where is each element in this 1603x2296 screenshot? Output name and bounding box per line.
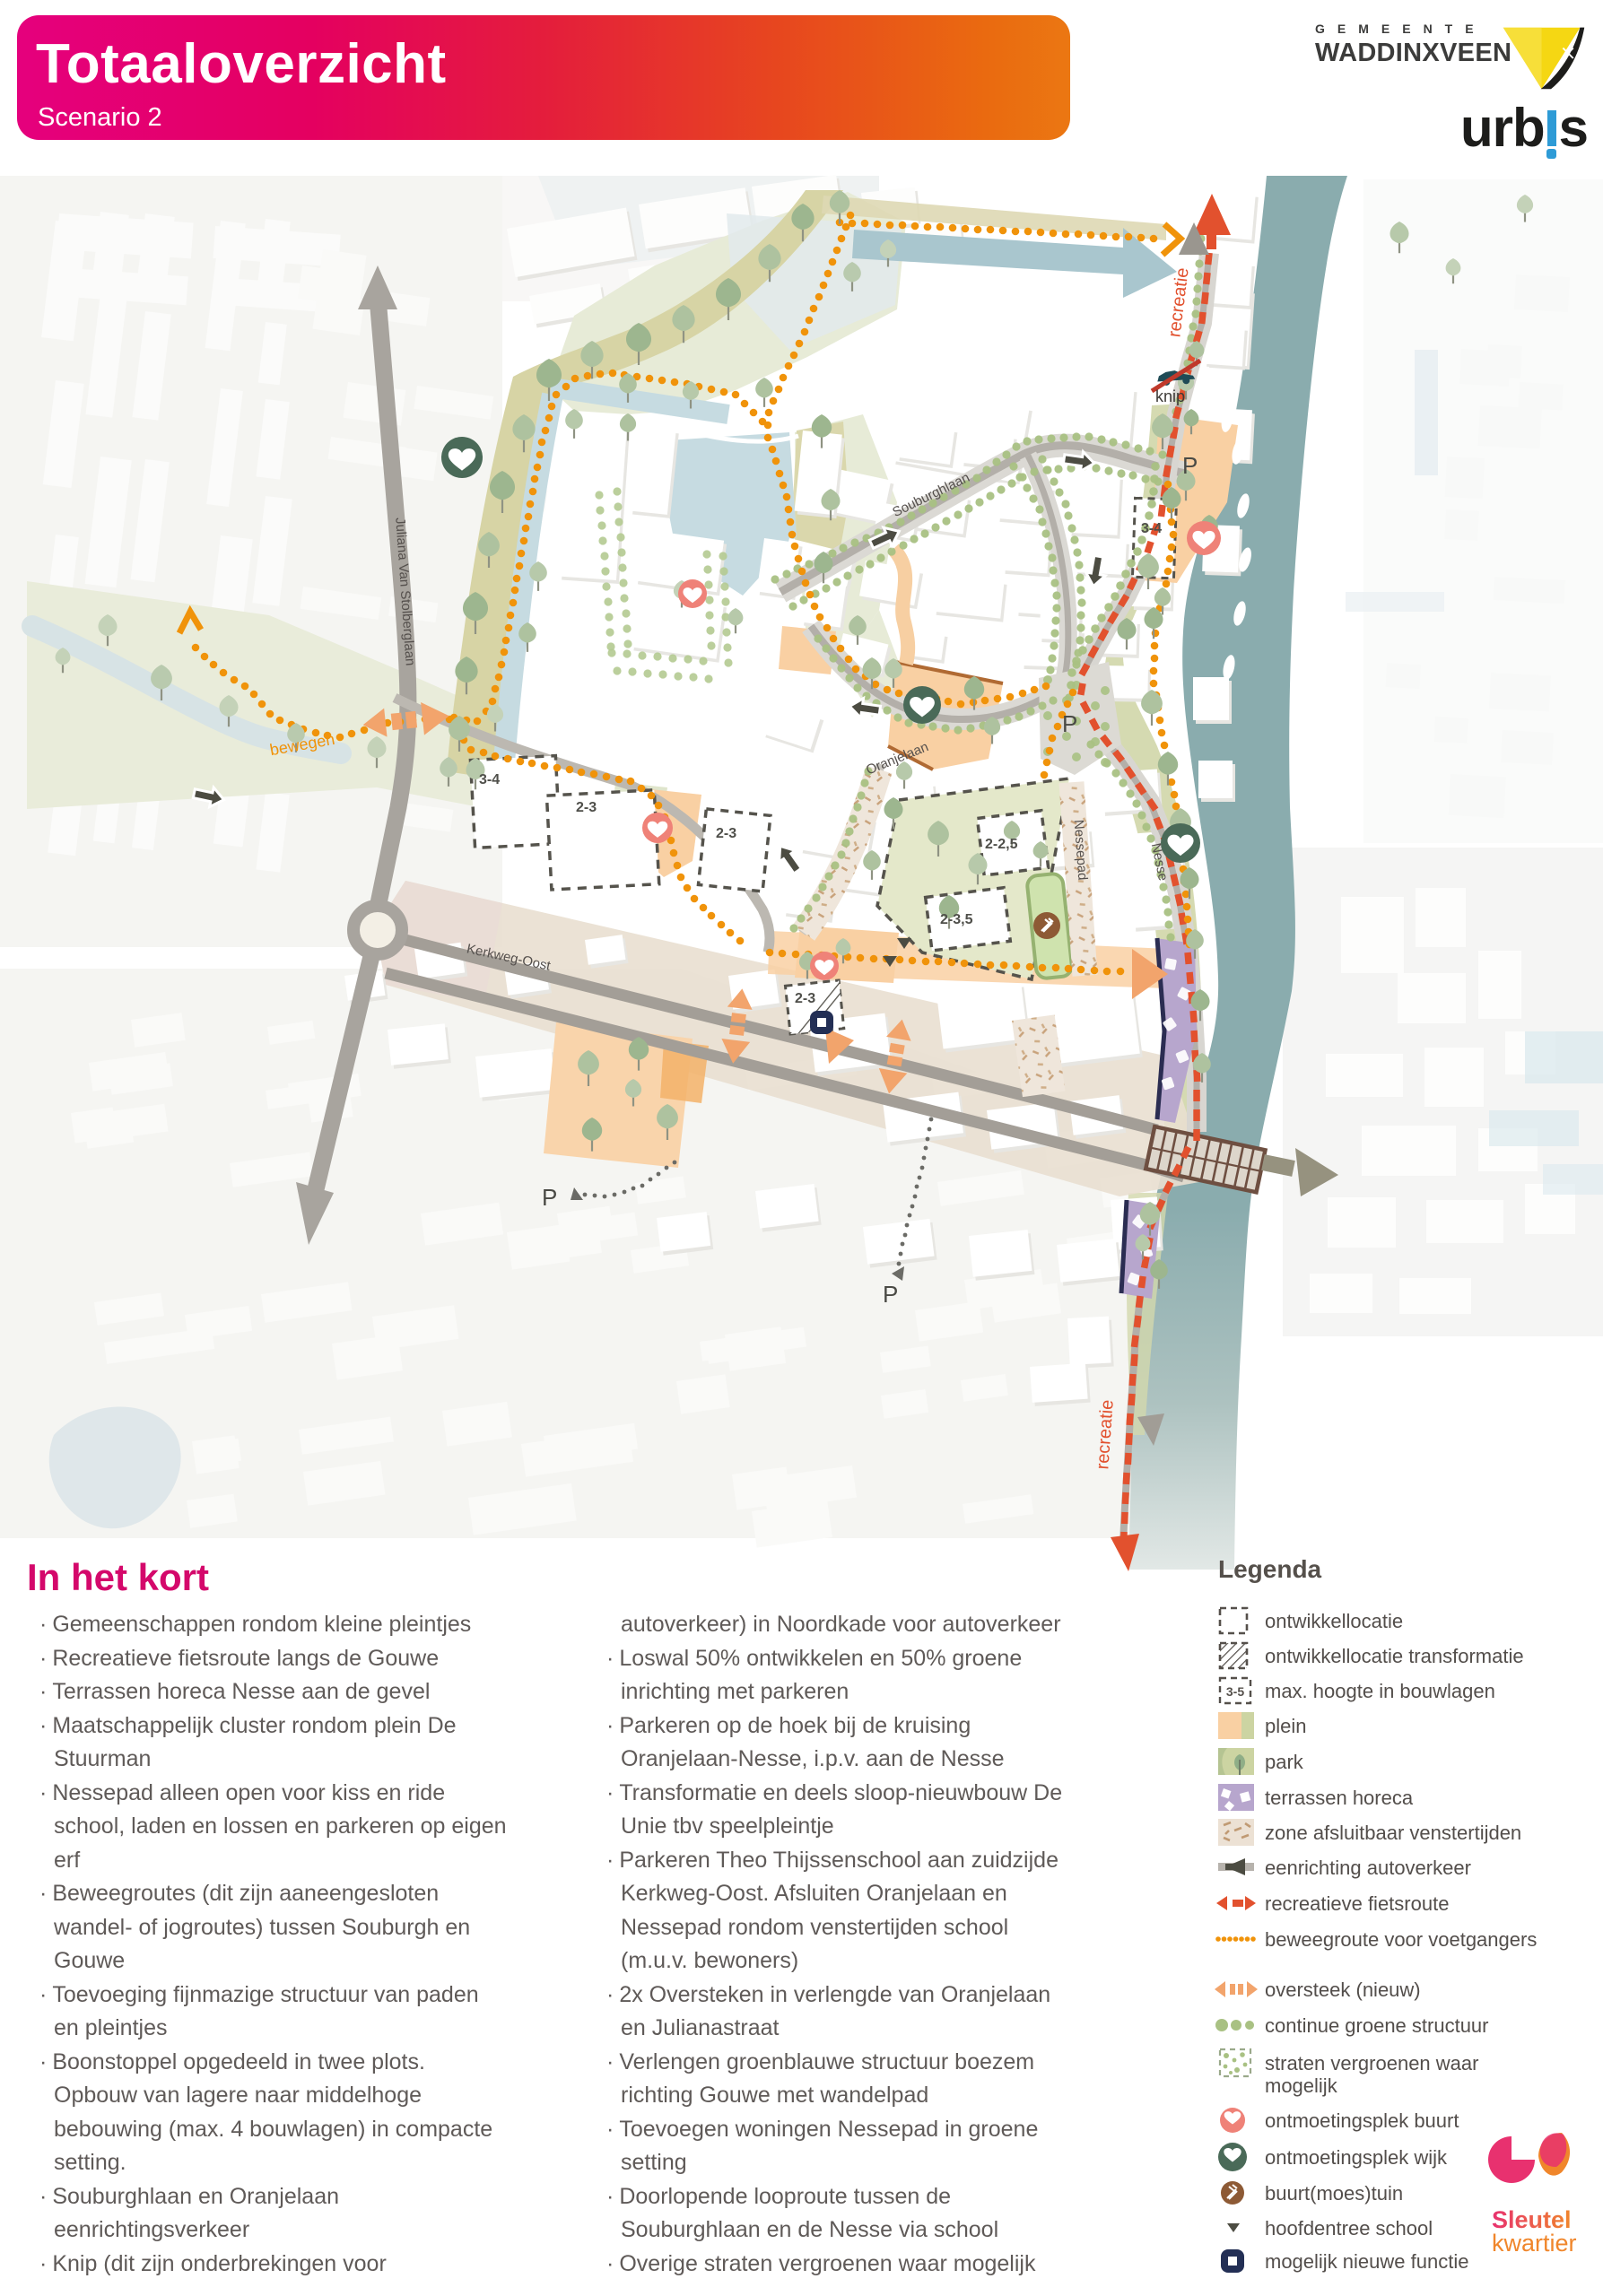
svg-text:2-3,5: 2-3,5 bbox=[940, 912, 973, 927]
svg-text:2-2,5: 2-2,5 bbox=[985, 837, 1018, 852]
svg-text:P: P bbox=[542, 1184, 557, 1211]
svg-text:2-3: 2-3 bbox=[576, 800, 597, 815]
svg-text:3-4: 3-4 bbox=[479, 772, 500, 787]
svg-text:P: P bbox=[883, 1281, 898, 1308]
svg-text:knip: knip bbox=[1155, 387, 1185, 405]
svg-text:P: P bbox=[1182, 452, 1198, 479]
svg-text:P: P bbox=[1062, 710, 1077, 737]
svg-text:2-3: 2-3 bbox=[716, 826, 736, 841]
svg-text:3-5: 3-5 bbox=[1226, 1684, 1244, 1699]
svg-text:2-3: 2-3 bbox=[795, 991, 815, 1006]
svg-text:recreatie: recreatie bbox=[1164, 266, 1192, 338]
svg-text:3-4: 3-4 bbox=[1141, 521, 1162, 536]
